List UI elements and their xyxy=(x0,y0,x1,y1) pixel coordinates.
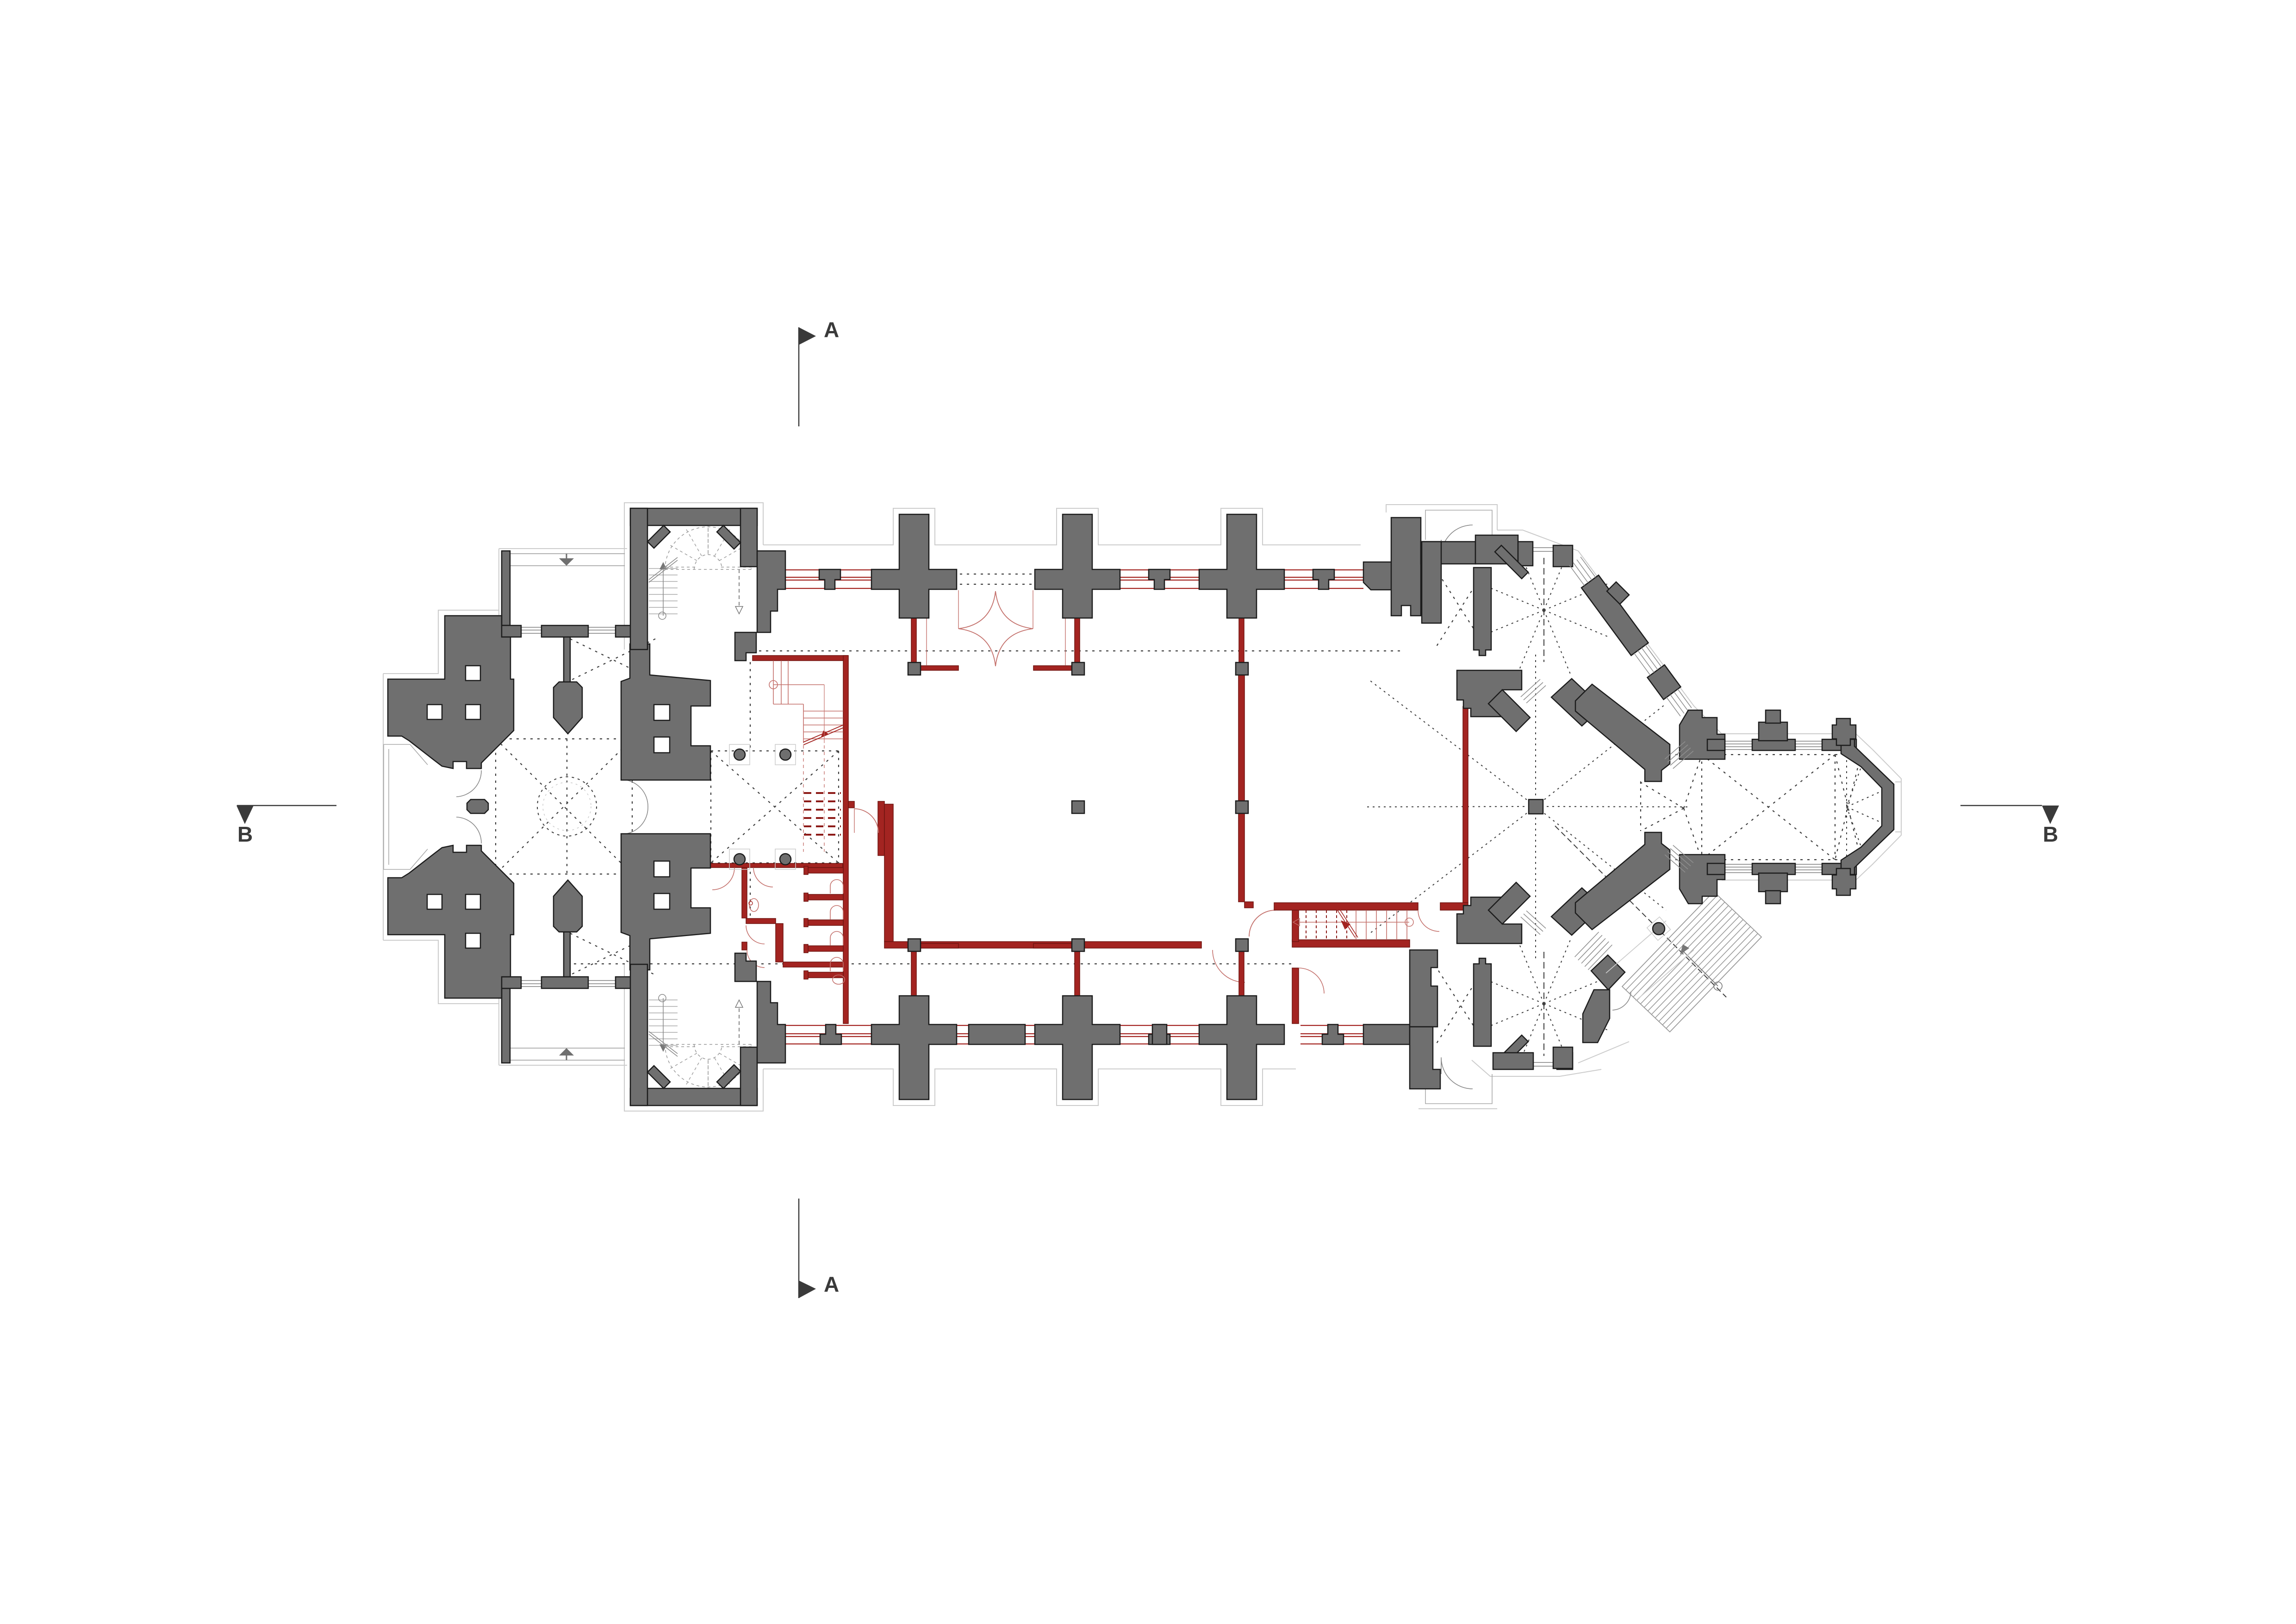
svg-text:A: A xyxy=(824,1272,839,1296)
svg-text:A: A xyxy=(824,318,839,342)
svg-text:B: B xyxy=(2043,822,2058,846)
svg-text:B: B xyxy=(237,822,253,846)
